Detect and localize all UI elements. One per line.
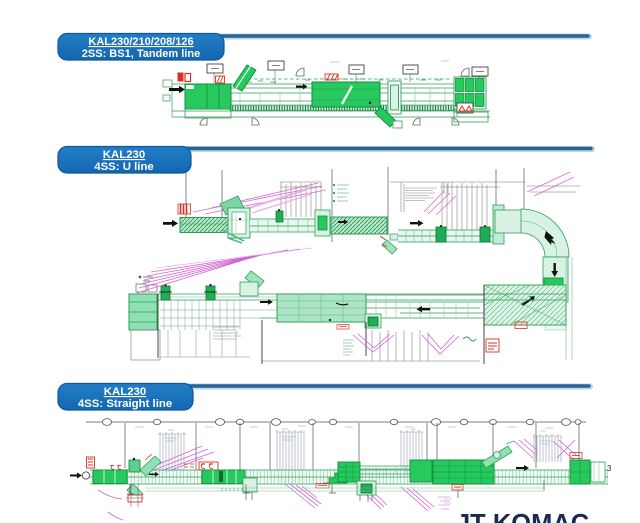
svg-text:KAL230: KAL230 — [103, 149, 145, 161]
svg-text:2SS: BS1, Tandem line: 2SS: BS1, Tandem line — [82, 48, 200, 60]
svg-text:KAL230/210/208/126: KAL230/210/208/126 — [88, 36, 193, 48]
svg-text:3: 3 — [607, 464, 612, 473]
svg-text:4SS: U line: 4SS: U line — [94, 161, 154, 173]
svg-text:JT KOMAC: JT KOMAC — [456, 510, 589, 523]
svg-text:KAL230: KAL230 — [104, 386, 146, 398]
svg-text:4SS: Straight line: 4SS: Straight line — [78, 398, 172, 410]
